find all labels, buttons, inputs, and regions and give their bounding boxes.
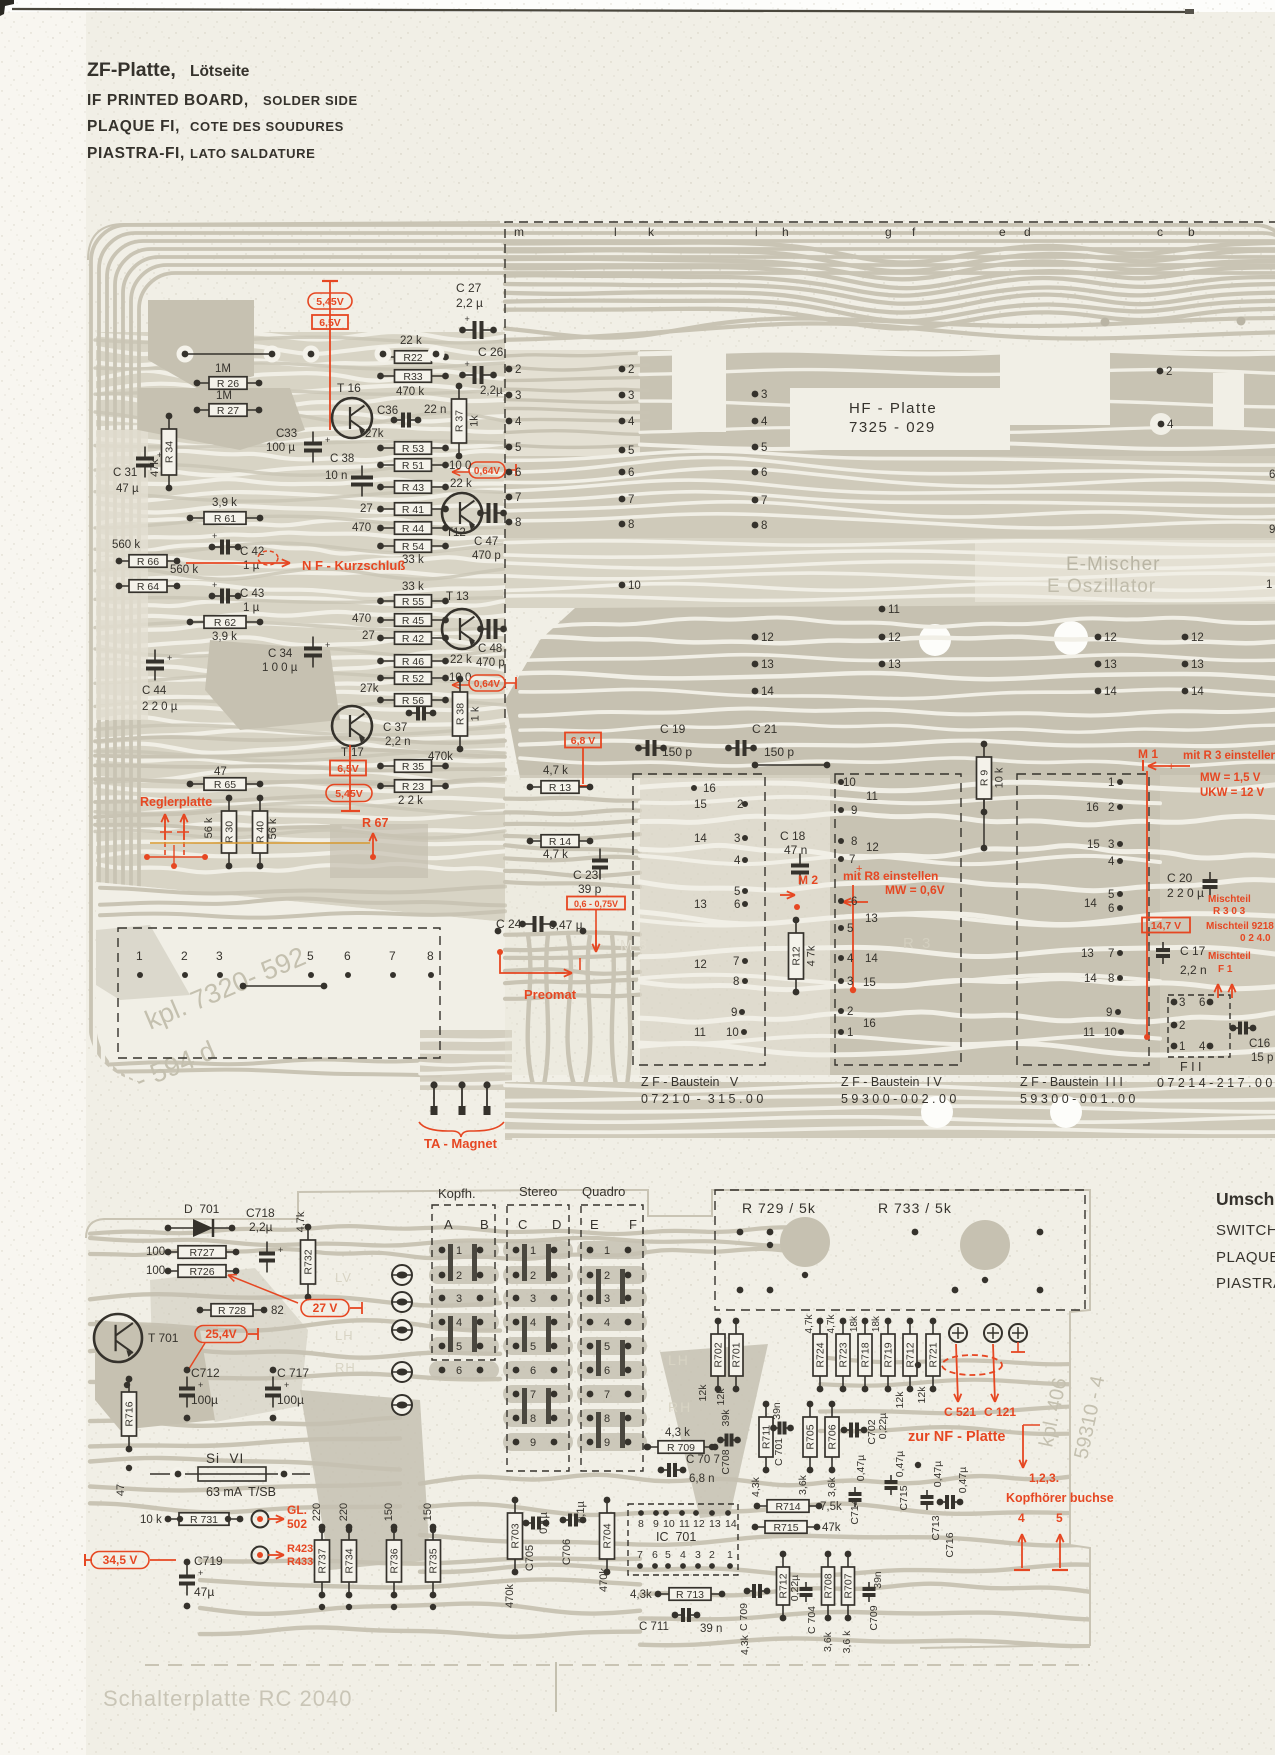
svg-text:3,9 k: 3,9 k bbox=[212, 497, 237, 509]
svg-text:470k: 470k bbox=[504, 1584, 516, 1608]
svg-text:11: 11 bbox=[888, 604, 900, 616]
svg-text:7: 7 bbox=[530, 1389, 536, 1401]
svg-text:39 n: 39 n bbox=[700, 1623, 722, 1635]
svg-text:+: + bbox=[465, 314, 470, 324]
svg-text:6,5V: 6,5V bbox=[337, 763, 359, 775]
svg-text:SWITCH: SWITCH bbox=[1216, 1222, 1275, 1239]
svg-text:3,9 k: 3,9 k bbox=[212, 631, 237, 643]
svg-text:C 18: C 18 bbox=[780, 829, 806, 843]
svg-text:R 44: R 44 bbox=[402, 523, 424, 535]
svg-text:11: 11 bbox=[694, 1027, 706, 1039]
svg-text:56 k: 56 k bbox=[203, 817, 215, 838]
svg-text:0,47µ: 0,47µ bbox=[957, 1467, 969, 1494]
svg-text:R714: R714 bbox=[775, 1501, 800, 1513]
svg-text:2: 2 bbox=[515, 364, 521, 376]
svg-text:R 54: R 54 bbox=[402, 541, 424, 553]
svg-text:PLAQUE: PLAQUE bbox=[1216, 1249, 1275, 1266]
svg-text:R 35: R 35 bbox=[402, 761, 424, 773]
svg-text:8: 8 bbox=[604, 1413, 610, 1425]
svg-text:MW = 0,6V: MW = 0,6V bbox=[885, 883, 945, 897]
svg-text:4: 4 bbox=[734, 855, 741, 867]
svg-text:2: 2 bbox=[847, 1006, 853, 1018]
svg-text:5 9 3 0 0 - 0 0 2 . 0 0: 5 9 3 0 0 - 0 0 2 . 0 0 bbox=[841, 1092, 956, 1106]
svg-text:R 9: R 9 bbox=[979, 770, 991, 787]
svg-text:2: 2 bbox=[628, 364, 634, 376]
svg-text:COTE DES SOUDURES: COTE DES SOUDURES bbox=[190, 119, 344, 134]
svg-text:R706: R706 bbox=[827, 1424, 839, 1449]
svg-text:1: 1 bbox=[456, 1245, 462, 1257]
svg-text:100 µ: 100 µ bbox=[266, 442, 295, 454]
svg-text:4,3k: 4,3k bbox=[630, 1589, 652, 1601]
svg-text:0 2 4.0: 0 2 4.0 bbox=[1240, 933, 1271, 944]
svg-text:4,7k: 4,7k bbox=[295, 1211, 307, 1232]
svg-text:27: 27 bbox=[360, 503, 373, 515]
svg-text:C 70 7: C 70 7 bbox=[686, 1454, 720, 1466]
svg-text:6: 6 bbox=[652, 1549, 658, 1561]
svg-text:14: 14 bbox=[1084, 898, 1097, 910]
svg-text:4,3k: 4,3k bbox=[750, 1476, 762, 1497]
svg-text:47 n: 47 n bbox=[784, 843, 807, 857]
svg-text:R 37: R 37 bbox=[454, 410, 466, 432]
svg-text:5: 5 bbox=[1056, 1511, 1063, 1525]
svg-text:4: 4 bbox=[628, 416, 635, 428]
svg-text:R727: R727 bbox=[189, 1247, 214, 1259]
svg-text:6,5V: 6,5V bbox=[319, 317, 341, 329]
svg-text:R 26: R 26 bbox=[217, 378, 239, 390]
svg-text:47k: 47k bbox=[149, 459, 161, 477]
svg-text:1 k: 1 k bbox=[470, 706, 482, 721]
svg-text:M 3: M 3 bbox=[620, 937, 648, 954]
svg-text:+: + bbox=[198, 1380, 203, 1390]
svg-text:0,47 µ: 0,47 µ bbox=[549, 918, 583, 932]
svg-text:22 k: 22 k bbox=[450, 654, 472, 666]
svg-text:R 40: R 40 bbox=[255, 821, 267, 843]
svg-text:3: 3 bbox=[1179, 997, 1185, 1009]
svg-text:Mischteil 9218: Mischteil 9218 bbox=[1206, 921, 1274, 932]
svg-text:R726: R726 bbox=[189, 1266, 214, 1278]
svg-text:14: 14 bbox=[725, 1518, 737, 1530]
svg-text:C712: C712 bbox=[191, 1366, 220, 1380]
svg-text:R423: R423 bbox=[287, 1543, 313, 1555]
svg-text:150 p: 150 p bbox=[662, 745, 692, 759]
svg-text:2 2 0 µ: 2 2 0 µ bbox=[142, 701, 178, 713]
svg-text:7: 7 bbox=[849, 854, 855, 866]
svg-text:T12: T12 bbox=[446, 527, 466, 539]
svg-text:C 521: C 521 bbox=[944, 1405, 976, 1419]
svg-text:C 27: C 27 bbox=[456, 281, 482, 295]
svg-text:R 42: R 42 bbox=[402, 633, 424, 645]
svg-text:k: k bbox=[648, 225, 655, 239]
svg-text:8: 8 bbox=[628, 519, 634, 531]
svg-text:M 1: M 1 bbox=[1138, 747, 1158, 761]
svg-text:4: 4 bbox=[680, 1549, 686, 1561]
svg-text:27: 27 bbox=[362, 630, 375, 642]
svg-text:14: 14 bbox=[865, 953, 878, 965]
svg-text:IC 701: IC 701 bbox=[656, 1530, 696, 1544]
svg-text:+: + bbox=[325, 435, 330, 445]
svg-text:+: + bbox=[157, 450, 162, 460]
svg-text:2 2 0 µ: 2 2 0 µ bbox=[1167, 886, 1204, 900]
svg-text:502: 502 bbox=[287, 1517, 307, 1531]
svg-text:13: 13 bbox=[761, 659, 774, 671]
svg-text:C 26: C 26 bbox=[478, 345, 504, 359]
svg-text:R708: R708 bbox=[823, 1573, 835, 1598]
svg-text:R33: R33 bbox=[403, 371, 422, 383]
svg-text:C 38: C 38 bbox=[330, 453, 354, 465]
svg-text:10: 10 bbox=[663, 1518, 675, 1530]
svg-text:5: 5 bbox=[456, 1341, 462, 1353]
svg-text:5: 5 bbox=[604, 1341, 610, 1353]
svg-text:15: 15 bbox=[694, 799, 707, 811]
svg-text:16: 16 bbox=[703, 783, 716, 795]
svg-text:Reglerplatte: Reglerplatte bbox=[140, 795, 212, 809]
svg-text:+: + bbox=[284, 1380, 289, 1390]
svg-text:6: 6 bbox=[456, 1365, 462, 1377]
svg-text:4: 4 bbox=[847, 953, 854, 965]
svg-text:6: 6 bbox=[530, 1365, 536, 1377]
svg-text:R 30: R 30 bbox=[224, 821, 236, 843]
svg-text:RH: RH bbox=[668, 1399, 692, 1415]
svg-text:0,47µ: 0,47µ bbox=[932, 1461, 944, 1488]
svg-text:R734: R734 bbox=[344, 1548, 356, 1573]
svg-text:R712: R712 bbox=[905, 1342, 917, 1367]
svg-text:3: 3 bbox=[761, 389, 767, 401]
svg-text:3,6k: 3,6k bbox=[822, 1631, 834, 1652]
svg-text:l: l bbox=[614, 225, 617, 239]
svg-text:+: + bbox=[1168, 761, 1174, 773]
svg-text:1: 1 bbox=[1266, 579, 1272, 591]
svg-text:6: 6 bbox=[761, 467, 767, 479]
svg-text:B: B bbox=[480, 1217, 489, 1232]
svg-text:12k: 12k bbox=[697, 1384, 709, 1402]
svg-text:12: 12 bbox=[888, 632, 901, 644]
svg-text:C 21: C 21 bbox=[752, 722, 778, 736]
svg-text:470k: 470k bbox=[598, 1568, 610, 1592]
svg-text:Preomat: Preomat bbox=[524, 987, 577, 1002]
svg-text:6: 6 bbox=[851, 896, 857, 908]
svg-text:3: 3 bbox=[515, 390, 521, 402]
svg-text:R704: R704 bbox=[602, 1523, 614, 1548]
svg-text:C 31: C 31 bbox=[113, 467, 137, 479]
svg-text:16: 16 bbox=[863, 1018, 876, 1030]
svg-text:E Oszillator: E Oszillator bbox=[1047, 576, 1156, 597]
svg-text:R 38: R 38 bbox=[455, 703, 467, 725]
svg-text:R 45: R 45 bbox=[402, 615, 424, 627]
svg-text:34,5 V: 34,5 V bbox=[103, 1553, 138, 1567]
svg-text:8: 8 bbox=[851, 836, 857, 848]
svg-text:10: 10 bbox=[628, 580, 641, 592]
svg-text:3,6 k: 3,6 k bbox=[841, 1630, 853, 1654]
svg-text:7: 7 bbox=[733, 956, 739, 968]
svg-text:1 µ: 1 µ bbox=[243, 602, 260, 614]
svg-text:F: F bbox=[629, 1217, 637, 1232]
svg-text:10 n: 10 n bbox=[325, 470, 347, 482]
svg-text:5: 5 bbox=[530, 1341, 536, 1353]
svg-text:PLAQUE FI,: PLAQUE FI, bbox=[87, 118, 180, 135]
svg-text:8: 8 bbox=[515, 517, 521, 529]
svg-text:LV: LV bbox=[335, 1270, 352, 1285]
svg-text:R716: R716 bbox=[124, 1401, 136, 1426]
svg-text:15: 15 bbox=[1087, 839, 1100, 851]
svg-text:0 7 2 1 0 - 3 1 5 . 0 0: 0 7 2 1 0 - 3 1 5 . 0 0 bbox=[641, 1092, 763, 1106]
svg-text:56 k: 56 k bbox=[267, 818, 279, 839]
svg-text:1: 1 bbox=[847, 1027, 853, 1039]
svg-text:Si VI: Si VI bbox=[206, 1451, 244, 1466]
svg-text:560 k: 560 k bbox=[112, 539, 140, 551]
svg-text:15: 15 bbox=[863, 977, 876, 989]
svg-text:C 44: C 44 bbox=[142, 685, 167, 697]
svg-text:7,5k: 7,5k bbox=[820, 1501, 842, 1513]
svg-text:C 47: C 47 bbox=[474, 536, 498, 548]
svg-text:0,1µ: 0,1µ bbox=[538, 1512, 550, 1534]
svg-text:4: 4 bbox=[1108, 856, 1115, 868]
svg-text:4: 4 bbox=[1018, 1511, 1025, 1525]
svg-text:13: 13 bbox=[1191, 659, 1204, 671]
svg-text:C 121: C 121 bbox=[984, 1405, 1016, 1419]
svg-text:8: 8 bbox=[638, 1518, 644, 1530]
svg-text:R701: R701 bbox=[731, 1342, 743, 1367]
svg-text:9: 9 bbox=[1106, 1007, 1112, 1019]
svg-text:C 19: C 19 bbox=[660, 722, 686, 736]
svg-text:C713: C713 bbox=[930, 1515, 942, 1540]
svg-text:470: 470 bbox=[352, 613, 371, 625]
svg-text:R 729 / 5k: R 729 / 5k bbox=[742, 1200, 816, 1216]
svg-text:560 k: 560 k bbox=[170, 564, 198, 576]
svg-text:+: + bbox=[167, 653, 172, 663]
svg-text:27k: 27k bbox=[360, 683, 379, 695]
svg-text:4 7k: 4 7k bbox=[806, 945, 818, 966]
svg-text:Stereo: Stereo bbox=[519, 1184, 557, 1199]
svg-text:22 n: 22 n bbox=[424, 404, 446, 416]
svg-text:47: 47 bbox=[214, 766, 227, 778]
svg-text:C715: C715 bbox=[898, 1485, 910, 1510]
svg-text:5: 5 bbox=[734, 886, 740, 898]
svg-text:C 717: C 717 bbox=[277, 1366, 309, 1380]
svg-text:R 51: R 51 bbox=[402, 460, 424, 472]
svg-text:16: 16 bbox=[1086, 802, 1099, 814]
svg-text:470 p: 470 p bbox=[476, 657, 505, 669]
svg-text:Schalterplatte RC 2040: Schalterplatte RC 2040 bbox=[103, 1686, 352, 1711]
svg-text:22 k: 22 k bbox=[450, 478, 472, 490]
svg-text:1M: 1M bbox=[215, 363, 231, 375]
svg-text:150: 150 bbox=[422, 1503, 434, 1521]
svg-text:R 14: R 14 bbox=[549, 836, 571, 848]
svg-text:R 67: R 67 bbox=[362, 816, 388, 830]
svg-text:10 k: 10 k bbox=[140, 1514, 162, 1526]
svg-text:R705: R705 bbox=[805, 1424, 817, 1449]
svg-text:100µ: 100µ bbox=[191, 1393, 218, 1407]
svg-text:39k: 39k bbox=[720, 1409, 732, 1427]
svg-text:12: 12 bbox=[694, 959, 707, 971]
svg-text:Mischteil: Mischteil bbox=[1208, 951, 1251, 962]
svg-text:470 p: 470 p bbox=[472, 550, 501, 562]
svg-text:6: 6 bbox=[1108, 903, 1114, 915]
svg-text:3: 3 bbox=[456, 1293, 462, 1305]
svg-text:27 V: 27 V bbox=[313, 1301, 338, 1315]
svg-text:3: 3 bbox=[847, 976, 853, 988]
svg-text:11: 11 bbox=[866, 791, 878, 803]
svg-text:5: 5 bbox=[515, 442, 521, 454]
svg-text:C 20: C 20 bbox=[1167, 871, 1193, 885]
svg-text:C 711: C 711 bbox=[639, 1621, 669, 1633]
svg-text:15 p: 15 p bbox=[1251, 1052, 1273, 1064]
svg-text:C708: C708 bbox=[720, 1449, 732, 1474]
svg-text:R 713: R 713 bbox=[676, 1589, 704, 1601]
svg-text:6: 6 bbox=[628, 467, 634, 479]
svg-text:82: 82 bbox=[271, 1305, 284, 1317]
svg-text:3: 3 bbox=[695, 1549, 701, 1561]
svg-text:5,45V: 5,45V bbox=[316, 296, 343, 308]
svg-text:1 µ: 1 µ bbox=[243, 560, 260, 572]
svg-text:7: 7 bbox=[637, 1549, 643, 1561]
svg-text:10: 10 bbox=[843, 777, 856, 789]
svg-text:C718: C718 bbox=[246, 1206, 275, 1220]
svg-text:N F - Kurzschluß: N F - Kurzschluß bbox=[302, 558, 405, 573]
svg-text:IF PRINTED BOARD,: IF PRINTED BOARD, bbox=[87, 92, 249, 109]
svg-text:C705: C705 bbox=[524, 1545, 536, 1571]
svg-text:3: 3 bbox=[628, 390, 634, 402]
svg-text:R433: R433 bbox=[287, 1556, 313, 1568]
svg-text:1: 1 bbox=[727, 1549, 733, 1561]
svg-text:Quadro: Quadro bbox=[582, 1184, 625, 1199]
svg-text:12k: 12k bbox=[715, 1388, 727, 1406]
svg-text:47µ: 47µ bbox=[194, 1585, 214, 1599]
svg-text:3,6k: 3,6k bbox=[797, 1474, 809, 1495]
svg-text:100: 100 bbox=[146, 1246, 165, 1258]
svg-text:33 k: 33 k bbox=[402, 581, 424, 593]
svg-text:C 17: C 17 bbox=[1180, 944, 1206, 958]
svg-text:63 mA T/SB: 63 mA T/SB bbox=[206, 1485, 276, 1499]
svg-text:13: 13 bbox=[888, 659, 901, 671]
svg-text:13: 13 bbox=[865, 913, 878, 925]
svg-text:C 43: C 43 bbox=[240, 588, 264, 600]
svg-text:7325 - 029: 7325 - 029 bbox=[849, 419, 936, 436]
svg-text:R 3 0 3: R 3 0 3 bbox=[1213, 906, 1246, 917]
svg-text:R737: R737 bbox=[317, 1548, 329, 1573]
svg-text:14: 14 bbox=[761, 686, 774, 698]
svg-text:13: 13 bbox=[694, 899, 707, 911]
svg-text:R 53: R 53 bbox=[402, 443, 424, 455]
svg-text:2: 2 bbox=[604, 1270, 610, 1282]
svg-text:Mischteil: Mischteil bbox=[1208, 894, 1251, 905]
svg-text:h: h bbox=[782, 225, 789, 239]
svg-text:C 23: C 23 bbox=[573, 868, 599, 882]
svg-text:F 1: F 1 bbox=[1218, 964, 1233, 975]
svg-text:12: 12 bbox=[1191, 632, 1204, 644]
svg-text:5: 5 bbox=[761, 442, 767, 454]
svg-text:R 728: R 728 bbox=[218, 1305, 246, 1317]
svg-text:220: 220 bbox=[311, 1503, 323, 1521]
svg-text:R 52: R 52 bbox=[402, 673, 424, 685]
svg-text:C 34: C 34 bbox=[268, 648, 293, 660]
svg-text:R 65: R 65 bbox=[214, 779, 236, 791]
svg-text:4: 4 bbox=[1199, 1041, 1206, 1053]
svg-text:m: m bbox=[514, 225, 524, 239]
svg-text:2: 2 bbox=[1108, 802, 1114, 814]
svg-text:100µ: 100µ bbox=[277, 1393, 304, 1407]
svg-text:13: 13 bbox=[1081, 948, 1094, 960]
svg-text:5: 5 bbox=[1108, 889, 1114, 901]
svg-text:C714: C714 bbox=[849, 1499, 861, 1524]
svg-text:+: + bbox=[325, 640, 330, 650]
svg-text:7: 7 bbox=[761, 495, 767, 507]
svg-text:8: 8 bbox=[530, 1413, 536, 1425]
svg-text:R 41: R 41 bbox=[402, 504, 424, 516]
svg-text:R 34: R 34 bbox=[164, 441, 176, 463]
svg-text:27k: 27k bbox=[365, 428, 384, 440]
svg-text:C719: C719 bbox=[194, 1554, 223, 1568]
svg-text:470 k: 470 k bbox=[396, 386, 424, 398]
svg-text:4,7k: 4,7k bbox=[826, 1314, 837, 1334]
svg-text:8: 8 bbox=[733, 976, 739, 988]
svg-text:+: + bbox=[278, 1245, 283, 1255]
svg-text:1: 1 bbox=[1179, 1041, 1185, 1053]
svg-text:C709: C709 bbox=[868, 1605, 880, 1630]
svg-text:10 k: 10 k bbox=[994, 767, 1006, 788]
svg-text:4,7k: 4,7k bbox=[804, 1314, 815, 1334]
svg-text:150 p: 150 p bbox=[764, 745, 794, 759]
svg-text:Z F - Baustein I I I: Z F - Baustein I I I bbox=[1020, 1075, 1123, 1089]
svg-text:6: 6 bbox=[734, 899, 740, 911]
svg-text:39n: 39n bbox=[872, 1571, 884, 1589]
svg-text:UKW = 12 V: UKW = 12 V bbox=[1200, 787, 1265, 799]
svg-text:4: 4 bbox=[515, 416, 522, 428]
svg-text:Kopfhörer buchse: Kopfhörer buchse bbox=[1006, 1491, 1114, 1505]
svg-text:RH: RH bbox=[335, 1360, 356, 1375]
svg-text:18k: 18k bbox=[871, 1315, 882, 1332]
svg-text:E: E bbox=[590, 1217, 599, 1232]
svg-text:2 2 k: 2 2 k bbox=[398, 795, 423, 807]
svg-text:470: 470 bbox=[352, 522, 371, 534]
svg-text:12: 12 bbox=[1104, 632, 1117, 644]
svg-text:mit R 3 einstellen: mit R 3 einstellen bbox=[1183, 750, 1275, 762]
svg-text:18k: 18k bbox=[849, 1315, 860, 1332]
svg-text:14: 14 bbox=[1084, 973, 1097, 985]
svg-text:T 701: T 701 bbox=[148, 1331, 179, 1345]
svg-text:C 704: C 704 bbox=[806, 1606, 818, 1634]
svg-text:PIASTRA: PIASTRA bbox=[1216, 1275, 1275, 1292]
svg-text:0,1µ: 0,1µ bbox=[575, 1501, 587, 1523]
svg-text:d: d bbox=[1024, 225, 1031, 239]
svg-text:6,8 n: 6,8 n bbox=[689, 1473, 715, 1485]
svg-text:0,6 - 0,75V: 0,6 - 0,75V bbox=[574, 899, 618, 909]
svg-text:R715: R715 bbox=[773, 1522, 798, 1534]
svg-text:R 709: R 709 bbox=[667, 1442, 695, 1454]
svg-text:D: D bbox=[552, 1217, 561, 1232]
svg-text:14,7 V: 14,7 V bbox=[1151, 920, 1181, 932]
svg-text:12: 12 bbox=[866, 842, 879, 854]
svg-text:R 64: R 64 bbox=[137, 581, 159, 593]
svg-text:25,4V: 25,4V bbox=[205, 1327, 236, 1341]
svg-text:R702: R702 bbox=[713, 1342, 725, 1367]
svg-text:TA - Magnet: TA - Magnet bbox=[424, 1136, 498, 1151]
svg-text:1,2,3.: 1,2,3. bbox=[1029, 1471, 1059, 1485]
svg-text:6,8 V: 6,8 V bbox=[571, 735, 596, 747]
svg-text:PIASTRA-FI,: PIASTRA-FI, bbox=[87, 145, 185, 162]
svg-text:12: 12 bbox=[761, 632, 774, 644]
svg-text:b: b bbox=[1188, 225, 1195, 239]
svg-text:+: + bbox=[212, 531, 217, 541]
svg-text:1: 1 bbox=[604, 1245, 610, 1257]
svg-text:R707: R707 bbox=[843, 1573, 855, 1598]
svg-text:R 46: R 46 bbox=[402, 656, 424, 668]
svg-text:R 66: R 66 bbox=[137, 556, 159, 568]
svg-text:100: 100 bbox=[146, 1265, 165, 1277]
svg-text:11: 11 bbox=[679, 1518, 690, 1530]
svg-text:C 701: C 701 bbox=[773, 1438, 785, 1466]
svg-text:7: 7 bbox=[1108, 948, 1114, 960]
svg-text:4,3k: 4,3k bbox=[739, 1634, 751, 1655]
